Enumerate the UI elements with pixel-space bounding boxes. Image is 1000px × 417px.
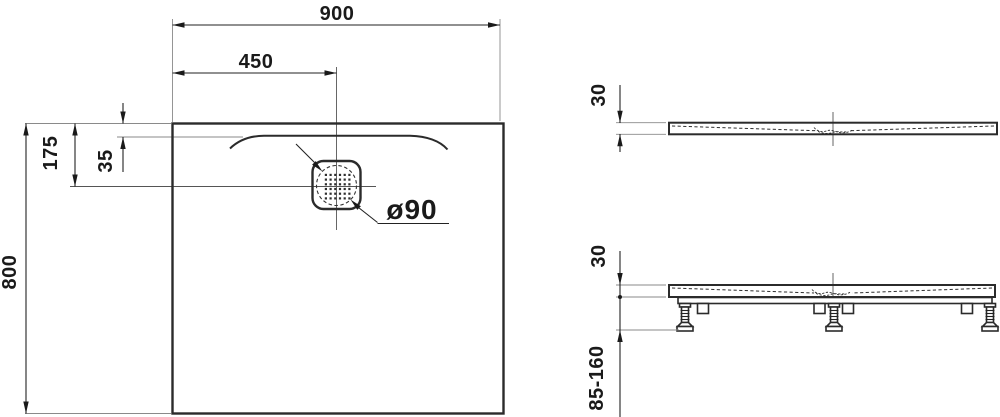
dim-label-drain-offset: 175	[40, 136, 62, 171]
slope-edge-curve	[230, 136, 448, 150]
dim-label-height: 30	[588, 83, 610, 106]
tray-outline-plan	[173, 124, 504, 414]
dimension-width: 900	[173, 3, 501, 28]
dimension-drain-offset: 175	[40, 124, 78, 187]
arrowhead-down	[617, 111, 622, 123]
dimension-dot	[618, 295, 622, 299]
frame-clip	[843, 304, 854, 314]
slope-dashed-left	[672, 126, 816, 131]
dimension-height-installed: 30 85-160	[586, 244, 679, 417]
adjustable-foot	[826, 304, 842, 332]
arrowhead-up	[617, 134, 622, 146]
frame-clip	[814, 304, 825, 314]
shower-tray-dimension-drawing: 900 450 175 35 800	[0, 0, 1000, 417]
arrowhead-top	[72, 124, 77, 136]
slope-dashed-left	[672, 288, 814, 293]
arrowhead-bottom	[72, 175, 77, 187]
dim-label-width: 900	[320, 3, 355, 25]
slope-dashed-right	[852, 288, 992, 293]
support-frame-rail	[678, 298, 992, 304]
installation-view: 30 85-160	[586, 244, 998, 417]
arrowhead-down	[120, 112, 125, 124]
dimension-slope-inset: 35	[95, 103, 126, 173]
arrowhead-down	[617, 273, 622, 285]
frame-clip	[698, 304, 709, 314]
dimension-height: 30	[588, 83, 666, 152]
dim-label-drain-diameter: ø90	[386, 194, 437, 225]
arrowhead-top	[23, 124, 28, 136]
dimension-drain-center: 450	[173, 51, 337, 76]
dim-label-height-installed: 30	[588, 244, 610, 267]
technical-drawing-page: 900 450 175 35 800	[0, 0, 1000, 417]
front-view: 30	[588, 83, 997, 152]
arrowhead-up	[120, 137, 125, 149]
slope-dashed-right	[850, 126, 994, 131]
arrowhead-left	[173, 22, 185, 27]
adjustable-foot	[677, 304, 693, 332]
arrowhead-right	[325, 70, 337, 75]
tray-profile-installed	[669, 285, 995, 297]
adjustable-foot	[982, 304, 998, 332]
plan-view: 900 450 175 35 800	[0, 3, 504, 414]
dimension-drain-diameter: ø90	[296, 144, 449, 225]
dim-label-depth: 800	[0, 255, 21, 290]
dimension-depth: 800	[0, 124, 29, 414]
arrowhead-up	[617, 330, 622, 342]
dim-label-slope-inset: 35	[95, 149, 117, 172]
frame-clip	[962, 304, 973, 314]
arrowhead-right	[488, 22, 500, 27]
dim-label-foot-range: 85-160	[586, 345, 608, 410]
arrowhead-bottom	[23, 402, 28, 414]
dim-label-drain-center: 450	[239, 51, 274, 73]
arrowhead-left	[173, 70, 185, 75]
